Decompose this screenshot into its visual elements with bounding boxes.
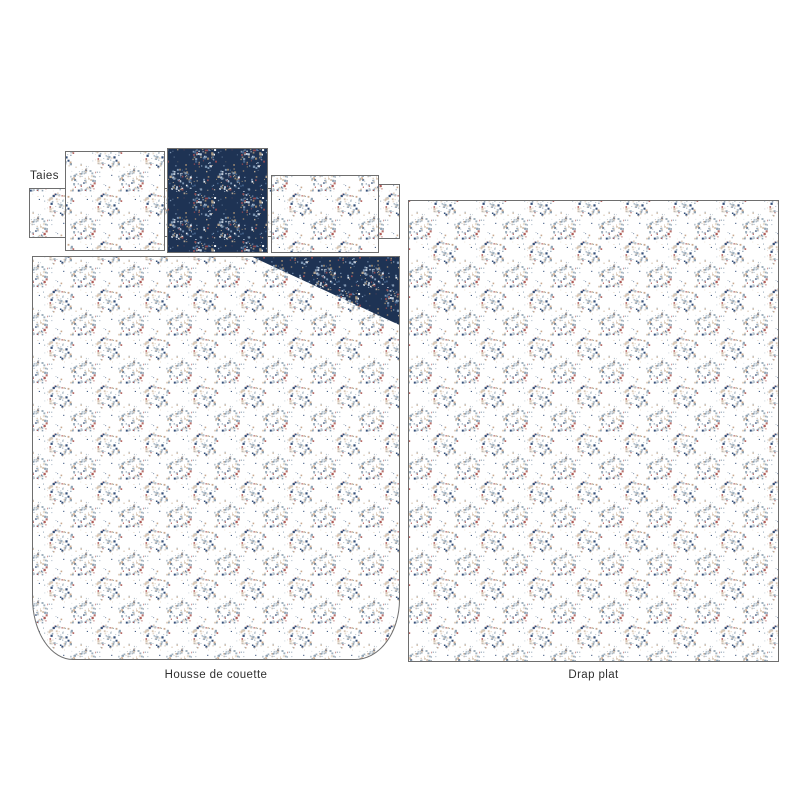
pillowcase-back-white (272, 176, 379, 253)
duvet-cover-label: Housse de couette (32, 669, 400, 681)
pillowcase-reverse-navy (168, 149, 268, 253)
flat-sheet-label: Drap plat (408, 669, 779, 681)
pillowcase-left-flap (30, 189, 68, 238)
flat-sheet (409, 201, 779, 662)
pillowcases-label: Taies (30, 170, 59, 182)
duvet-cover (33, 257, 400, 660)
pillowcase-row (30, 149, 400, 253)
pillowcase-right-flap (378, 185, 400, 239)
duvet-cover-shape (33, 257, 400, 660)
pillowcase-front-white (66, 152, 165, 251)
bedding-set-layout: Taies Housse de couette Drap plat (0, 0, 800, 800)
